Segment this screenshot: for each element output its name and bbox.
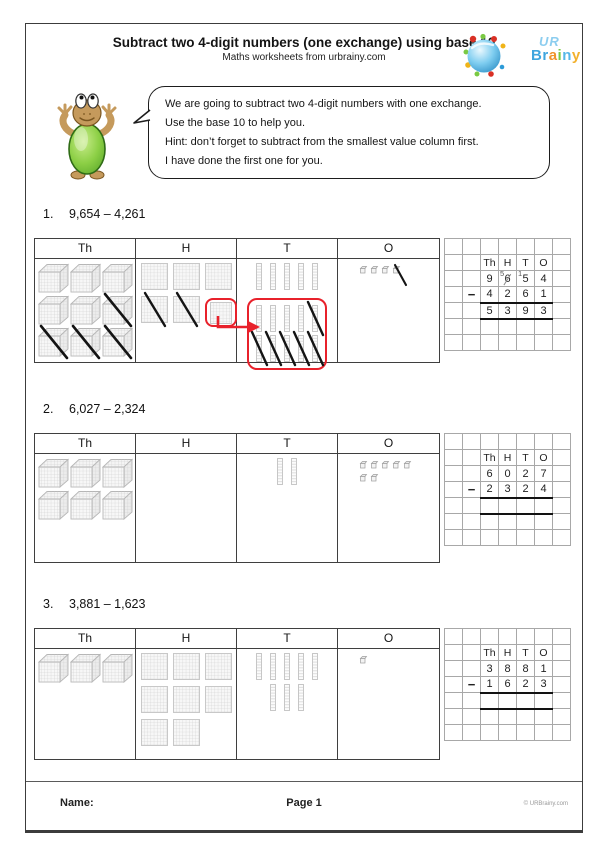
grid-cell bbox=[499, 725, 517, 741]
answer-cell: 3 bbox=[499, 303, 517, 319]
one-unit-block bbox=[371, 266, 378, 274]
grid-cell bbox=[481, 335, 499, 351]
minuend-cell: 6 bbox=[481, 466, 499, 482]
block-row bbox=[38, 458, 135, 488]
grid-cell bbox=[553, 335, 571, 351]
thousand-cube-block bbox=[38, 327, 69, 357]
grid-cell bbox=[517, 319, 535, 335]
subtrahend-cell: 2 bbox=[481, 482, 499, 498]
grid-cell bbox=[517, 434, 535, 450]
grid-cell bbox=[463, 239, 481, 255]
block-row bbox=[38, 295, 135, 325]
hundred-flat-block bbox=[141, 263, 168, 290]
grid-cell bbox=[463, 709, 481, 725]
grid-cell bbox=[463, 514, 481, 530]
grid-cell bbox=[463, 335, 481, 351]
minuend-digit: 1 bbox=[540, 663, 546, 675]
grid-cell bbox=[445, 239, 463, 255]
place-value-cell-O bbox=[338, 454, 439, 562]
grid-cell bbox=[535, 239, 553, 255]
ten-rod-block bbox=[298, 335, 304, 362]
grid-cell bbox=[445, 303, 463, 319]
ten-rod-block bbox=[284, 263, 290, 290]
minuend-cell: 3 bbox=[481, 661, 499, 677]
column-header-T: T bbox=[237, 629, 338, 648]
block-row bbox=[256, 263, 318, 290]
ten-rod-block bbox=[284, 305, 290, 332]
grid-cell bbox=[517, 239, 535, 255]
hundred-flat-block bbox=[173, 263, 200, 290]
answer-grid: ThHTO6027−2324 bbox=[444, 433, 571, 546]
grid-header-cell: Th bbox=[481, 450, 499, 466]
answer-cell: 5 bbox=[481, 303, 499, 319]
subtrahend-cell: 4 bbox=[481, 287, 499, 303]
grid-cell bbox=[499, 514, 517, 530]
block-row bbox=[141, 686, 236, 713]
grid-cell bbox=[553, 287, 571, 303]
thousand-cube-block bbox=[102, 295, 133, 325]
grid-cell bbox=[517, 709, 535, 725]
exchange-arrow bbox=[210, 307, 280, 341]
hundred-flat-block bbox=[141, 653, 168, 680]
grid-cell bbox=[445, 514, 463, 530]
grid-cell bbox=[499, 530, 517, 546]
ten-rod-block bbox=[270, 653, 276, 680]
minuend-digit: 7 bbox=[540, 468, 546, 480]
grid-cell bbox=[535, 629, 553, 645]
grid-cell bbox=[463, 271, 481, 287]
one-unit-block bbox=[382, 461, 389, 469]
speech-bubble-tail bbox=[133, 109, 151, 135]
grid-header-cell: O bbox=[535, 255, 553, 271]
answer-grid: ThHTO956154−42615393 bbox=[444, 238, 571, 351]
minuend-digit: 6 bbox=[486, 468, 492, 480]
block-row bbox=[141, 263, 236, 290]
ten-rod-block bbox=[312, 263, 318, 290]
one-unit-block bbox=[393, 461, 400, 469]
block-row bbox=[360, 266, 439, 274]
minus-sign-cell: − bbox=[463, 677, 481, 693]
grid-cell bbox=[553, 434, 571, 450]
block-row bbox=[360, 474, 439, 482]
thousand-cube-block bbox=[70, 490, 101, 520]
grid-cell bbox=[445, 725, 463, 741]
minuend-cell: 56 bbox=[499, 271, 517, 287]
grid-cell bbox=[445, 466, 463, 482]
grid-cell bbox=[463, 645, 481, 661]
column-header-H: H bbox=[136, 629, 237, 648]
hundred-flat-block bbox=[205, 653, 232, 680]
hundred-flat-block bbox=[173, 296, 200, 323]
grid-cell bbox=[553, 661, 571, 677]
place-value-header-row: ThHTO bbox=[35, 434, 439, 454]
minuend-digit: 8 bbox=[522, 663, 528, 675]
grid-cell bbox=[553, 709, 571, 725]
speech-bubble: We are going to subtract two 4-digit num… bbox=[148, 86, 550, 179]
one-unit-block bbox=[360, 474, 367, 482]
question-expression: 6,027 – 2,324 bbox=[69, 402, 145, 416]
one-unit-block bbox=[393, 266, 400, 274]
grid-cell bbox=[553, 693, 571, 709]
answer-cell bbox=[535, 693, 553, 709]
thousand-cube-block bbox=[38, 458, 69, 488]
thousand-cube-block bbox=[38, 263, 69, 293]
block-row bbox=[38, 263, 135, 293]
place-value-header-row: ThHTO bbox=[35, 239, 439, 259]
hundred-flat-block bbox=[205, 686, 232, 713]
subtrahend-cell: 3 bbox=[535, 677, 553, 693]
minus-sign-cell: − bbox=[463, 482, 481, 498]
answer-grid: ThHTO3881−1623 bbox=[444, 628, 571, 741]
place-value-cell-Th bbox=[35, 454, 136, 562]
logo-brainy-text: Brainy bbox=[531, 47, 581, 64]
grid-cell bbox=[445, 482, 463, 498]
grid-header-cell: T bbox=[517, 645, 535, 661]
minuend-cell: 9 bbox=[481, 271, 499, 287]
minuend-digit: 5 bbox=[522, 273, 528, 285]
grid-cell bbox=[445, 434, 463, 450]
answer-cell bbox=[481, 693, 499, 709]
ten-rod-block bbox=[298, 653, 304, 680]
speech-text: We are going to subtract two 4-digit num… bbox=[165, 95, 537, 171]
column-header-T: T bbox=[237, 434, 338, 453]
place-value-table: ThHTO bbox=[34, 628, 440, 760]
ten-rod-block bbox=[270, 684, 276, 711]
answer-cell bbox=[535, 498, 553, 514]
grid-cell bbox=[517, 335, 535, 351]
question-label: 2.6,027 – 2,324 bbox=[43, 402, 145, 416]
question-section-1: 1.9,654 – 4,261ThHTO bbox=[26, 207, 584, 385]
minuend-digit: 4 bbox=[540, 273, 546, 285]
answer-cell: 9 bbox=[517, 303, 535, 319]
speech-line: Use the base 10 to help you. bbox=[165, 114, 537, 133]
logo-letter: a bbox=[549, 47, 558, 64]
grid-cell bbox=[499, 709, 517, 725]
hundred-flat-block bbox=[141, 686, 168, 713]
grid-cell bbox=[553, 645, 571, 661]
minuend-digit: 6 bbox=[504, 273, 510, 285]
block-row bbox=[360, 461, 439, 469]
ten-rod-block bbox=[270, 263, 276, 290]
grid-cell bbox=[463, 319, 481, 335]
grid-cell bbox=[445, 661, 463, 677]
thousand-cube-block bbox=[102, 653, 133, 683]
one-unit-block bbox=[360, 461, 367, 469]
mascot-character bbox=[56, 88, 118, 180]
question-number: 3. bbox=[43, 597, 69, 611]
urbrainy-logo: UR Brainy bbox=[463, 31, 581, 87]
grid-cell bbox=[445, 709, 463, 725]
minuend-digit: 2 bbox=[522, 468, 528, 480]
block-row bbox=[38, 327, 135, 357]
block-row bbox=[277, 458, 297, 485]
column-header-T: T bbox=[237, 239, 338, 258]
question-expression: 3,881 – 1,623 bbox=[69, 597, 145, 611]
logo-letter: n bbox=[562, 47, 572, 64]
grid-cell bbox=[445, 693, 463, 709]
minuend-cell: 15 bbox=[517, 271, 535, 287]
ten-rod-block bbox=[256, 263, 262, 290]
thousand-cube-block bbox=[70, 653, 101, 683]
block-row bbox=[141, 653, 236, 680]
thousand-cube-block bbox=[102, 490, 133, 520]
grid-cell bbox=[445, 677, 463, 693]
grid-cell bbox=[499, 239, 517, 255]
thousand-cube-block bbox=[70, 263, 101, 293]
place-value-cell-Th bbox=[35, 649, 136, 759]
block-row bbox=[360, 656, 439, 664]
grid-cell bbox=[445, 271, 463, 287]
one-unit-block bbox=[404, 461, 411, 469]
thousand-cube-block bbox=[102, 263, 133, 293]
grid-cell bbox=[553, 239, 571, 255]
ten-rod-block bbox=[284, 335, 290, 362]
answer-cell: 3 bbox=[535, 303, 553, 319]
grid-cell bbox=[517, 530, 535, 546]
minuend-digit: 9 bbox=[486, 273, 492, 285]
column-header-Th: Th bbox=[35, 434, 136, 453]
grid-header-cell: O bbox=[535, 450, 553, 466]
subtrahend-cell: 2 bbox=[499, 287, 517, 303]
thousand-cube-block bbox=[38, 490, 69, 520]
block-row bbox=[256, 653, 318, 680]
one-unit-block bbox=[360, 656, 367, 664]
grid-cell bbox=[481, 514, 499, 530]
place-value-body bbox=[35, 649, 439, 759]
grid-cell bbox=[553, 450, 571, 466]
grid-header-cell: T bbox=[517, 450, 535, 466]
ten-rod-block bbox=[312, 653, 318, 680]
grid-cell bbox=[445, 645, 463, 661]
grid-cell bbox=[445, 255, 463, 271]
grid-header-cell: Th bbox=[481, 645, 499, 661]
grid-cell bbox=[553, 629, 571, 645]
grid-cell bbox=[499, 319, 517, 335]
thousand-cube-block bbox=[38, 295, 69, 325]
column-header-O: O bbox=[338, 239, 439, 258]
ten-rod-block bbox=[256, 653, 262, 680]
minuend-cell: 0 bbox=[499, 466, 517, 482]
subtrahend-cell: 1 bbox=[535, 287, 553, 303]
hundred-flat-block bbox=[141, 296, 168, 323]
one-unit-block bbox=[371, 474, 378, 482]
place-value-cell-Th bbox=[35, 259, 136, 362]
hundred-flat-block bbox=[173, 719, 200, 746]
subtrahend-cell: 2 bbox=[517, 482, 535, 498]
grid-header-cell: Th bbox=[481, 255, 499, 271]
grid-cell bbox=[553, 514, 571, 530]
grid-header-cell: O bbox=[535, 645, 553, 661]
grid-cell bbox=[517, 514, 535, 530]
minuend-digit: 8 bbox=[504, 663, 510, 675]
grid-cell bbox=[517, 725, 535, 741]
question-number: 2. bbox=[43, 402, 69, 416]
place-value-cell-H bbox=[136, 454, 237, 562]
grid-cell bbox=[481, 530, 499, 546]
one-unit-block bbox=[382, 266, 389, 274]
grid-cell bbox=[535, 725, 553, 741]
question-label: 1.9,654 – 4,261 bbox=[43, 207, 145, 221]
grid-cell bbox=[481, 319, 499, 335]
grid-cell bbox=[553, 319, 571, 335]
grid-header-cell: H bbox=[499, 645, 517, 661]
grid-cell bbox=[553, 255, 571, 271]
answer-cell bbox=[517, 498, 535, 514]
answer-cell bbox=[517, 693, 535, 709]
grid-cell bbox=[553, 271, 571, 287]
block-row bbox=[141, 719, 236, 746]
grid-cell bbox=[445, 530, 463, 546]
place-value-header-row: ThHTO bbox=[35, 629, 439, 649]
block-row bbox=[38, 653, 135, 683]
grid-cell bbox=[445, 287, 463, 303]
subtrahend-cell: 2 bbox=[517, 677, 535, 693]
grid-cell bbox=[553, 498, 571, 514]
thousand-cube-block bbox=[38, 653, 69, 683]
grid-cell bbox=[535, 335, 553, 351]
minuend-digit: 3 bbox=[486, 663, 492, 675]
ten-rod-block bbox=[312, 335, 318, 362]
exchange-small-digit: 1 bbox=[518, 270, 522, 278]
thousand-cube-block bbox=[70, 458, 101, 488]
place-value-table: ThHTO bbox=[34, 238, 440, 363]
minuend-cell: 4 bbox=[535, 271, 553, 287]
ten-rod-block bbox=[298, 263, 304, 290]
ten-rod-block bbox=[312, 305, 318, 332]
ten-rod-block bbox=[284, 684, 290, 711]
grid-cell bbox=[463, 450, 481, 466]
grid-cell bbox=[445, 450, 463, 466]
grid-cell bbox=[535, 514, 553, 530]
ten-rod-block bbox=[298, 305, 304, 332]
grid-cell bbox=[445, 498, 463, 514]
grid-cell bbox=[499, 434, 517, 450]
speech-line: Hint: don’t forget to subtract from the … bbox=[165, 133, 537, 152]
minuend-cell: 2 bbox=[517, 466, 535, 482]
place-value-cell-H bbox=[136, 649, 237, 759]
hundred-flat-block bbox=[173, 686, 200, 713]
column-header-O: O bbox=[338, 629, 439, 648]
grid-cell bbox=[553, 303, 571, 319]
worksheet-page: Subtract two 4-digit numbers (one exchan… bbox=[25, 23, 583, 833]
grid-header-cell: H bbox=[499, 450, 517, 466]
thousand-cube-block bbox=[102, 327, 133, 357]
minuend-cell: 1 bbox=[535, 661, 553, 677]
minuend-digit: 0 bbox=[504, 468, 510, 480]
grid-cell bbox=[445, 335, 463, 351]
logo-letter: B bbox=[531, 47, 542, 64]
grid-cell bbox=[463, 434, 481, 450]
minuend-cell: 8 bbox=[517, 661, 535, 677]
grid-cell bbox=[499, 629, 517, 645]
place-value-cell-T bbox=[237, 454, 338, 562]
place-value-body bbox=[35, 454, 439, 562]
grid-cell bbox=[553, 725, 571, 741]
grid-cell bbox=[553, 677, 571, 693]
ten-rod-block bbox=[298, 684, 304, 711]
grid-cell bbox=[499, 335, 517, 351]
subtrahend-cell: 1 bbox=[481, 677, 499, 693]
grid-cell bbox=[463, 303, 481, 319]
subtrahend-cell: 3 bbox=[499, 482, 517, 498]
column-header-H: H bbox=[136, 239, 237, 258]
place-value-cell-O bbox=[338, 259, 439, 362]
copyright: © URBrainy.com bbox=[524, 801, 568, 807]
question-number: 1. bbox=[43, 207, 69, 221]
one-unit-block bbox=[371, 461, 378, 469]
page-number: Page 1 bbox=[26, 797, 582, 809]
grid-cell bbox=[553, 482, 571, 498]
place-value-cell-T bbox=[237, 649, 338, 759]
minuend-cell: 7 bbox=[535, 466, 553, 482]
grid-cell bbox=[463, 725, 481, 741]
grid-cell bbox=[463, 693, 481, 709]
subtrahend-cell: 6 bbox=[499, 677, 517, 693]
grid-cell bbox=[445, 629, 463, 645]
grid-cell bbox=[481, 629, 499, 645]
grid-cell bbox=[517, 629, 535, 645]
grid-cell bbox=[535, 319, 553, 335]
block-row bbox=[270, 684, 304, 711]
column-header-H: H bbox=[136, 434, 237, 453]
grid-cell bbox=[481, 239, 499, 255]
question-section-2: 2.6,027 – 2,324ThHTO bbox=[26, 402, 584, 580]
grid-cell bbox=[535, 434, 553, 450]
grid-cell bbox=[553, 466, 571, 482]
grid-cell bbox=[553, 530, 571, 546]
minuend-cell: 8 bbox=[499, 661, 517, 677]
grid-cell bbox=[463, 629, 481, 645]
speech-line: We are going to subtract two 4-digit num… bbox=[165, 95, 537, 114]
thousand-cube-block bbox=[70, 295, 101, 325]
grid-cell bbox=[535, 709, 553, 725]
question-label: 3.3,881 – 1,623 bbox=[43, 597, 145, 611]
minus-sign-cell: − bbox=[463, 287, 481, 303]
hundred-flat-block bbox=[141, 719, 168, 746]
speech-line: I have done the first one for you. bbox=[165, 152, 537, 171]
place-value-cell-O bbox=[338, 649, 439, 759]
place-value-table: ThHTO bbox=[34, 433, 440, 563]
column-header-Th: Th bbox=[35, 629, 136, 648]
answer-cell bbox=[481, 498, 499, 514]
logo-letter: y bbox=[572, 47, 581, 64]
question-section-3: 3.3,881 – 1,623ThHTO bbox=[26, 597, 584, 775]
grid-cell bbox=[481, 434, 499, 450]
grid-cell bbox=[463, 661, 481, 677]
grid-cell bbox=[463, 466, 481, 482]
thousand-cube-block bbox=[102, 458, 133, 488]
one-unit-block bbox=[360, 266, 367, 274]
grid-cell bbox=[445, 319, 463, 335]
thousand-cube-block bbox=[70, 327, 101, 357]
grid-cell bbox=[481, 709, 499, 725]
logo-globe-icon bbox=[463, 33, 509, 81]
grid-cell bbox=[463, 255, 481, 271]
ten-rod-block bbox=[284, 653, 290, 680]
block-row bbox=[38, 490, 135, 520]
ten-rod-block bbox=[277, 458, 283, 485]
grid-cell bbox=[463, 498, 481, 514]
grid-cell bbox=[463, 530, 481, 546]
grid-cell bbox=[535, 530, 553, 546]
answer-cell bbox=[499, 693, 517, 709]
footer: Name: Page 1 © URBrainy.com bbox=[26, 781, 582, 830]
answer-cell bbox=[499, 498, 517, 514]
hundred-flat-block bbox=[173, 653, 200, 680]
hundred-flat-block bbox=[205, 263, 232, 290]
ten-rod-block bbox=[291, 458, 297, 485]
column-header-O: O bbox=[338, 434, 439, 453]
